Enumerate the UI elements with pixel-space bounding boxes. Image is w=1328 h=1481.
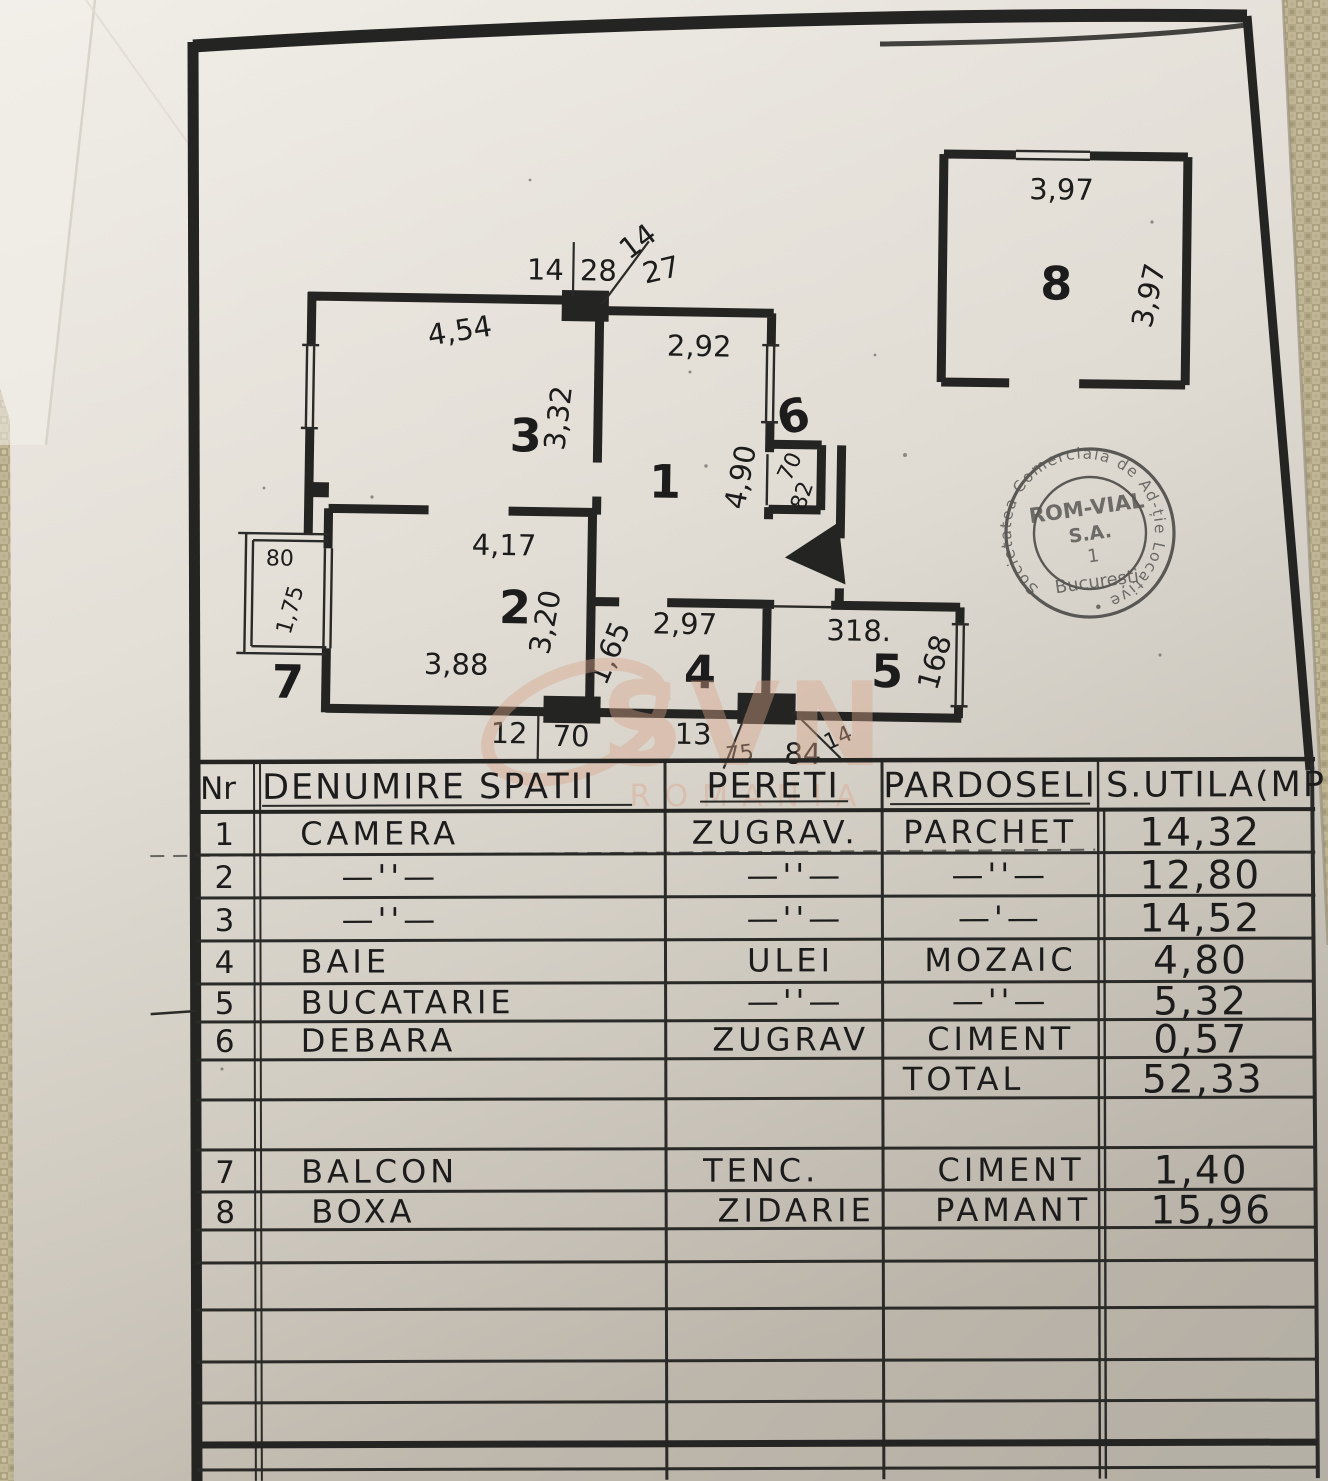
total-value: 52,33	[1142, 1057, 1264, 1102]
dim-292: 2,92	[667, 329, 732, 364]
row1-pardoseli: PARCHET	[903, 813, 1077, 851]
row4-pardoseli: MOZAIC	[924, 941, 1076, 979]
row7-nr: 7	[215, 1155, 235, 1191]
row7-pardoseli: CIMENT	[937, 1151, 1084, 1189]
row4-nr: 4	[215, 945, 235, 981]
row5-pardoseli: —''—	[952, 982, 1050, 1020]
row1-nr: 1	[214, 817, 234, 853]
header-pereti: PERETI	[706, 766, 839, 806]
dim-417: 4,17	[471, 528, 536, 563]
room-label-8: 8	[1040, 256, 1073, 310]
row2-nr: 2	[214, 860, 234, 896]
table-top-border	[195, 759, 1315, 762]
row8-sutila: 15,96	[1150, 1188, 1272, 1233]
row1-sutila: 14,32	[1139, 810, 1261, 855]
dim-bottom-70: 70	[552, 719, 589, 754]
row2-denumire: —''—	[341, 857, 439, 895]
table-thick-separator	[197, 1442, 1317, 1445]
header-sutila: S.UTILA(MP	[1106, 765, 1326, 806]
photographed-floor-plan-document: 14 28 14 27 4,54 2,92 3,32 4,90 70 82 4,…	[0, 0, 1328, 1481]
room-label-1: 1	[649, 454, 682, 508]
dim-top-28: 28	[580, 253, 617, 288]
row8-pereti: ZIDARIE	[718, 1191, 875, 1229]
row6-nr: 6	[215, 1024, 235, 1060]
row3-nr: 3	[215, 903, 235, 939]
wall-vent-block	[562, 290, 609, 322]
table-col-divider-pardoseli	[882, 760, 884, 1479]
table-col-divider-pereti	[665, 761, 667, 1480]
row6-denumire: DEBARA	[301, 1021, 457, 1059]
room-label-7: 7	[271, 654, 304, 708]
row7-denumire: BALCON	[301, 1152, 458, 1190]
header-denumire: DENUMIRE SPATII	[262, 767, 595, 808]
row2-sutila: 12,80	[1139, 853, 1261, 898]
header-pardoseli: PARDOSELI	[883, 766, 1097, 807]
row5-pereti: —''—	[747, 982, 845, 1020]
row2-pardoseli: —''—	[951, 856, 1049, 894]
row4-pereti: ULEI	[747, 941, 834, 979]
dim-top-14: 14	[527, 252, 564, 287]
row3-pereti: —''—	[747, 899, 845, 937]
row3-denumire: —''—	[342, 900, 440, 938]
row1-pereti: ZUGRAV.	[692, 813, 859, 851]
row8-nr: 8	[215, 1195, 235, 1231]
row4-denumire: BAIE	[300, 942, 390, 980]
dim-318: 318.	[826, 613, 891, 648]
dim-balcony-80: 80	[266, 546, 294, 571]
row3-sutila: 14,52	[1140, 896, 1262, 941]
total-label: TOTAL	[902, 1060, 1025, 1098]
row7-pereti: TENC.	[702, 1151, 819, 1189]
row6-sutila: 0,57	[1153, 1017, 1248, 1062]
dim-388: 3,88	[424, 647, 489, 682]
dim-297: 2,97	[652, 606, 717, 641]
row6-pereti: ZUGRAV	[712, 1020, 869, 1058]
row1-denumire: CAMERA	[300, 814, 459, 852]
room-label-2: 2	[499, 580, 532, 634]
row8-denumire: BOXA	[311, 1192, 415, 1230]
row5-denumire: BUCATARIE	[301, 983, 515, 1022]
row6-pardoseli: CIMENT	[927, 1020, 1074, 1058]
row8-pardoseli: PAMANT	[935, 1191, 1091, 1229]
row3-pardoseli: —'—	[958, 899, 1043, 937]
row4-sutila: 4,80	[1153, 938, 1248, 983]
header-nr: Nr	[200, 771, 236, 807]
room-label-3: 3	[509, 408, 542, 462]
row2-pereti: —''—	[746, 856, 844, 894]
dim-room8-top-397: 3,97	[1029, 172, 1094, 207]
row5-nr: 5	[215, 986, 235, 1022]
wall-tab	[309, 482, 329, 497]
row7-sutila: 1,40	[1154, 1148, 1249, 1193]
